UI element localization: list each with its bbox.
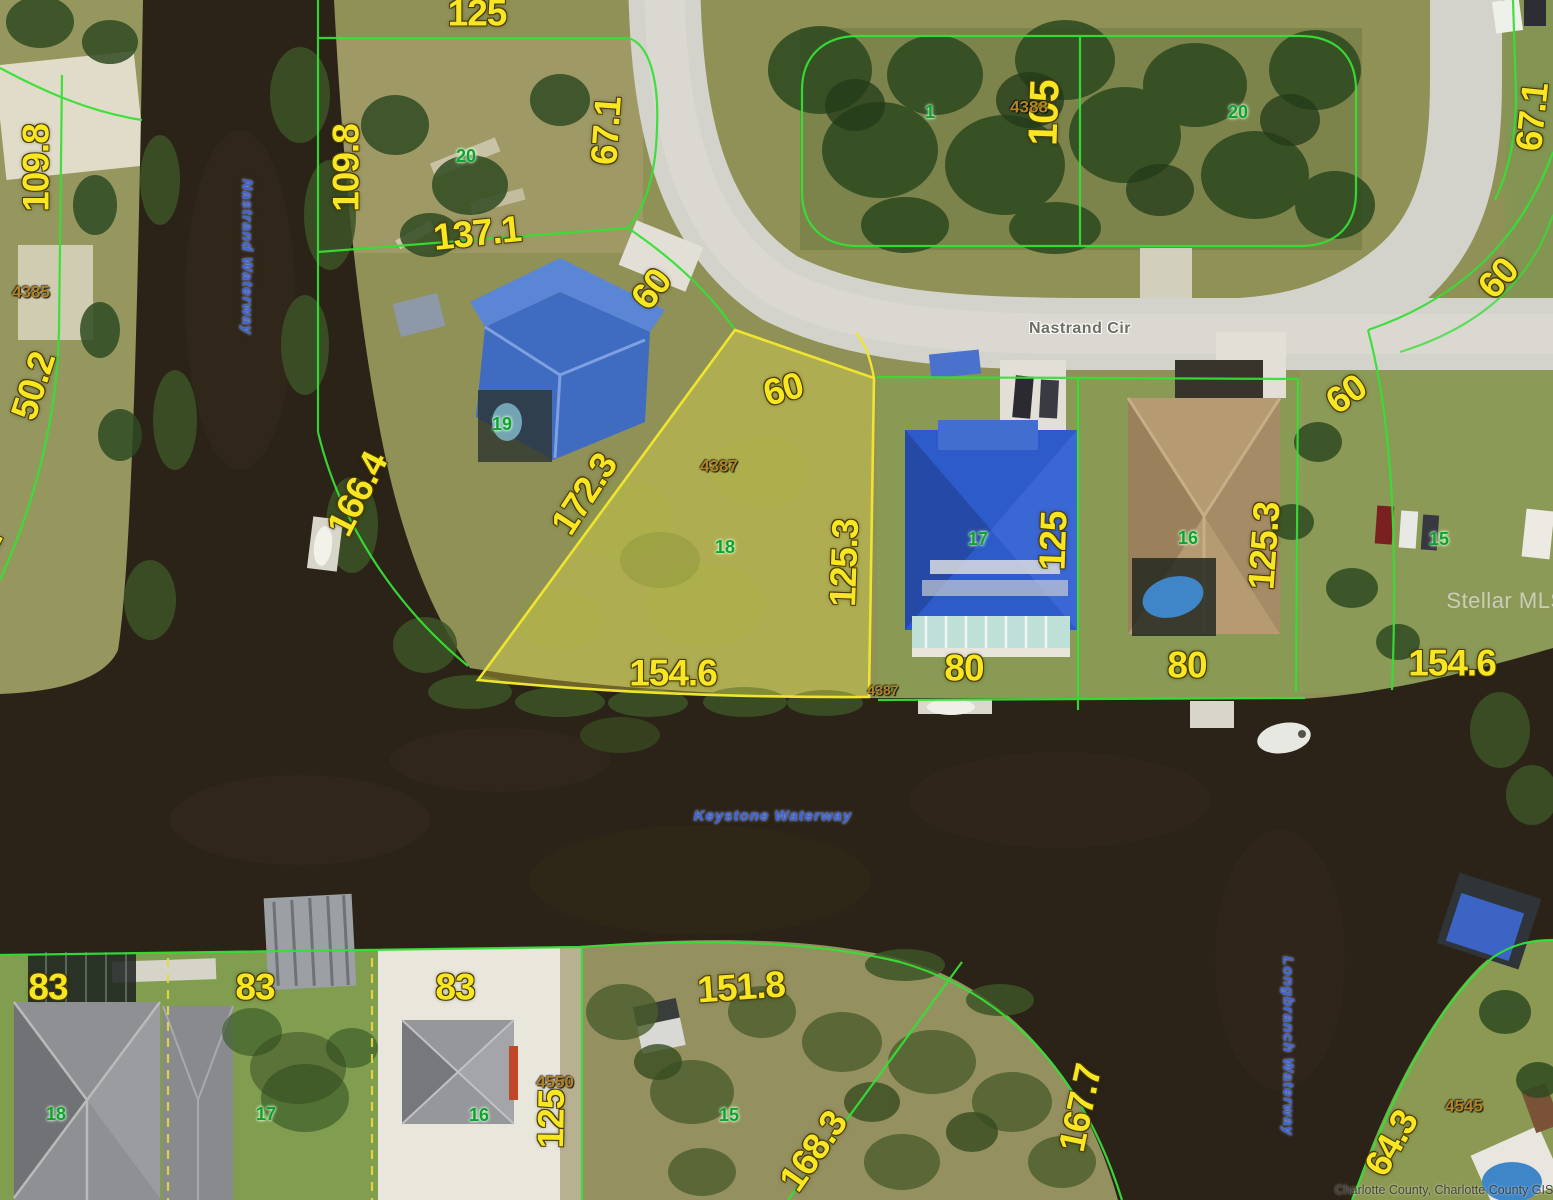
house-lot16 bbox=[1128, 360, 1280, 636]
aerial-parcel-map: 125109.8109.867.1137.150.250.2166.460172… bbox=[0, 0, 1553, 1200]
satellite-imagery bbox=[0, 0, 1553, 1200]
